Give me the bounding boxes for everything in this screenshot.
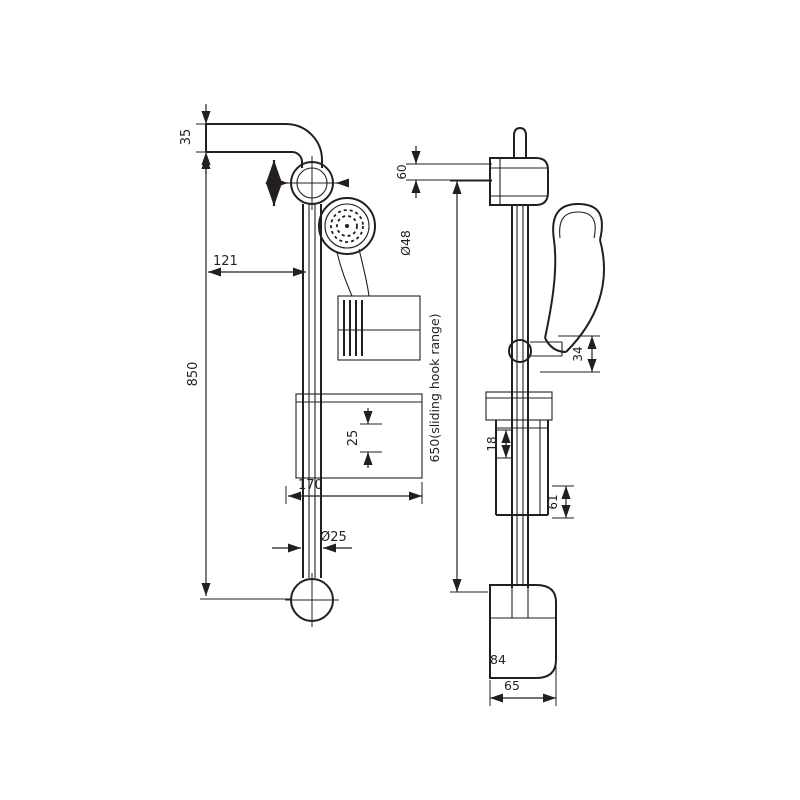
shower-slide-bar-technical-drawing: 35 850 121 25 170 Ø25 60 Ø48 650(sliding… [0, 0, 800, 800]
top-bracket-side [490, 128, 548, 205]
swivel-joint [278, 156, 346, 210]
dia-25-label: Ø25 [320, 530, 347, 545]
rail-pipe-front [303, 204, 321, 578]
dim-850-label: 850 [186, 362, 201, 387]
dimension-lines [196, 104, 600, 706]
hand-shower-side [545, 204, 604, 352]
soap-dish-side [486, 392, 552, 515]
wall-arm [206, 124, 322, 168]
side-view [486, 128, 604, 678]
dim-60-label: 60 [395, 164, 409, 179]
dim-61-label: 61 [546, 494, 560, 509]
front-view [206, 124, 422, 627]
dim-170-label: 170 [298, 478, 323, 493]
bottom-end-cap [285, 573, 339, 627]
hand-shower-front [319, 198, 375, 296]
dim-84-label: 84 [490, 652, 506, 667]
dim-65-label: 65 [504, 678, 520, 693]
dim-121-label: 121 [213, 254, 238, 269]
rail-pipe-side [512, 205, 528, 588]
dim-18-label: 18 [485, 436, 499, 451]
range-note-label: 650(sliding hook range) [427, 313, 442, 462]
dia-48-label: Ø48 [398, 230, 413, 256]
dim-35-label: 35 [179, 129, 194, 146]
dimension-labels: 35 850 121 25 170 Ø25 60 Ø48 650(sliding… [179, 129, 585, 693]
dim-34-label: 34 [571, 346, 585, 361]
drawing-canvas: 35 850 121 25 170 Ø25 60 Ø48 650(sliding… [0, 0, 800, 800]
holder-bracket-front [338, 296, 420, 360]
dim-25-label: 25 [346, 430, 361, 447]
